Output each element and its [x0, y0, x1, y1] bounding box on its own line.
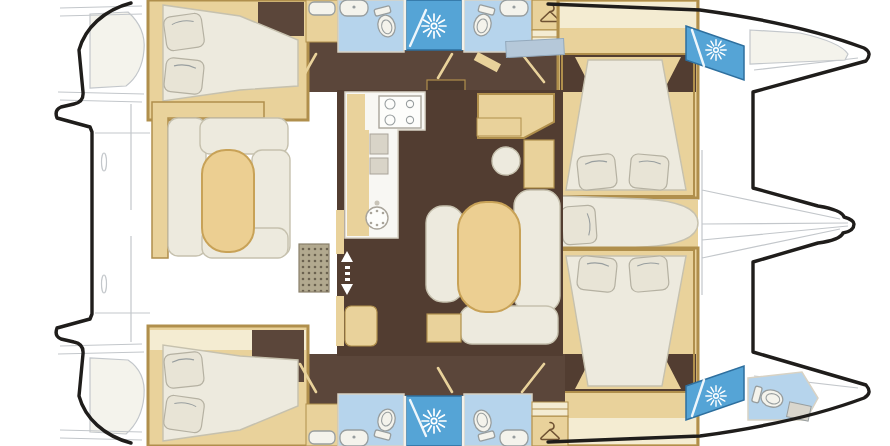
- nav-stool: [492, 147, 520, 175]
- washbasin: [340, 0, 368, 16]
- appliance: [370, 158, 388, 174]
- washbasin: [340, 430, 368, 446]
- shower-floor: [406, 0, 462, 50]
- cockpit-table: [202, 150, 254, 252]
- floor-grate-icon: [299, 244, 329, 292]
- stair-tread: [427, 80, 465, 91]
- shower-floor: [406, 396, 462, 446]
- floorplan-canvas: [0, 0, 890, 446]
- washbasin: [500, 0, 528, 16]
- stove-icon: [379, 96, 421, 128]
- fridge: [370, 134, 388, 154]
- washbasin: [500, 430, 528, 446]
- cockpit-sofa-top: [200, 118, 288, 154]
- vanity-sink: [309, 2, 335, 15]
- salon-sofa-bottom: [460, 306, 558, 344]
- pillow: [163, 13, 205, 52]
- pillow: [576, 153, 617, 191]
- floorplan-page: [0, 0, 890, 446]
- bathroom-top-aft: [338, 0, 404, 52]
- pillow: [163, 395, 205, 434]
- shower-bottom: [406, 396, 462, 446]
- bathroom-bottom-aft: [338, 394, 404, 446]
- bathroom-bottom-fwd: [464, 394, 532, 446]
- galley-end-cabinet: [345, 306, 377, 346]
- pillow: [163, 57, 204, 95]
- pillow: [629, 153, 670, 190]
- salon-window: [506, 38, 565, 57]
- salon-door-frame: [336, 210, 344, 254]
- wardrobe-bottom: [532, 402, 568, 446]
- forward-lounge: [560, 196, 698, 254]
- dining-table: [458, 202, 520, 312]
- forward-cabin-bottom: [558, 248, 698, 446]
- salon-cabinet: [427, 314, 461, 342]
- vanity-sink: [309, 431, 335, 444]
- pillow: [629, 255, 670, 292]
- pillow: [561, 205, 598, 245]
- sideboard: [477, 118, 521, 136]
- forward-cabin-top: [558, 0, 698, 198]
- nav-seat-cabinet: [524, 140, 554, 188]
- pillow: [163, 351, 204, 389]
- pillow: [576, 255, 617, 293]
- stern-platform-bottom: [90, 358, 144, 434]
- galley-cabinets: [347, 94, 365, 130]
- aft-cabin-bottom: [148, 326, 338, 446]
- salon-door-frame: [336, 296, 344, 346]
- shower-top: [406, 0, 462, 50]
